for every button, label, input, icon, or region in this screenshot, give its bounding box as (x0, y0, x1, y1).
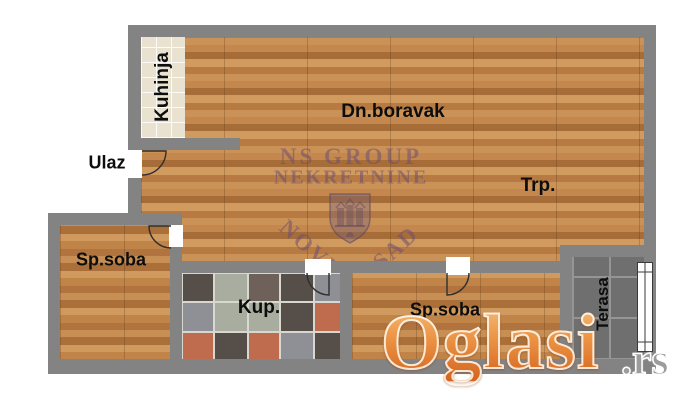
room-label-entrance: Ulaz (88, 153, 125, 174)
room-label-dining: Trp. (521, 175, 556, 197)
room-label-living-room: Dn.boravak (341, 101, 444, 123)
floor-plan: NS GROUP NEKRETNINE NOVI SAD (0, 0, 700, 420)
bathroom-door-swing-icon (307, 273, 329, 295)
room-label-bathroom: Kup. (238, 297, 280, 319)
oglasi-watermark: Oglasi (381, 303, 599, 381)
entrance-door-swing-icon (142, 151, 166, 175)
bedroom-left-door-swing-icon (149, 226, 171, 248)
room-label-bedroom-left: Sp.soba (76, 250, 146, 271)
room-label-kitchen: Kuhinja (152, 52, 174, 122)
bedroom-right-door-swing-icon (447, 273, 469, 295)
oglasi-tld-watermark: .rs (621, 338, 669, 382)
